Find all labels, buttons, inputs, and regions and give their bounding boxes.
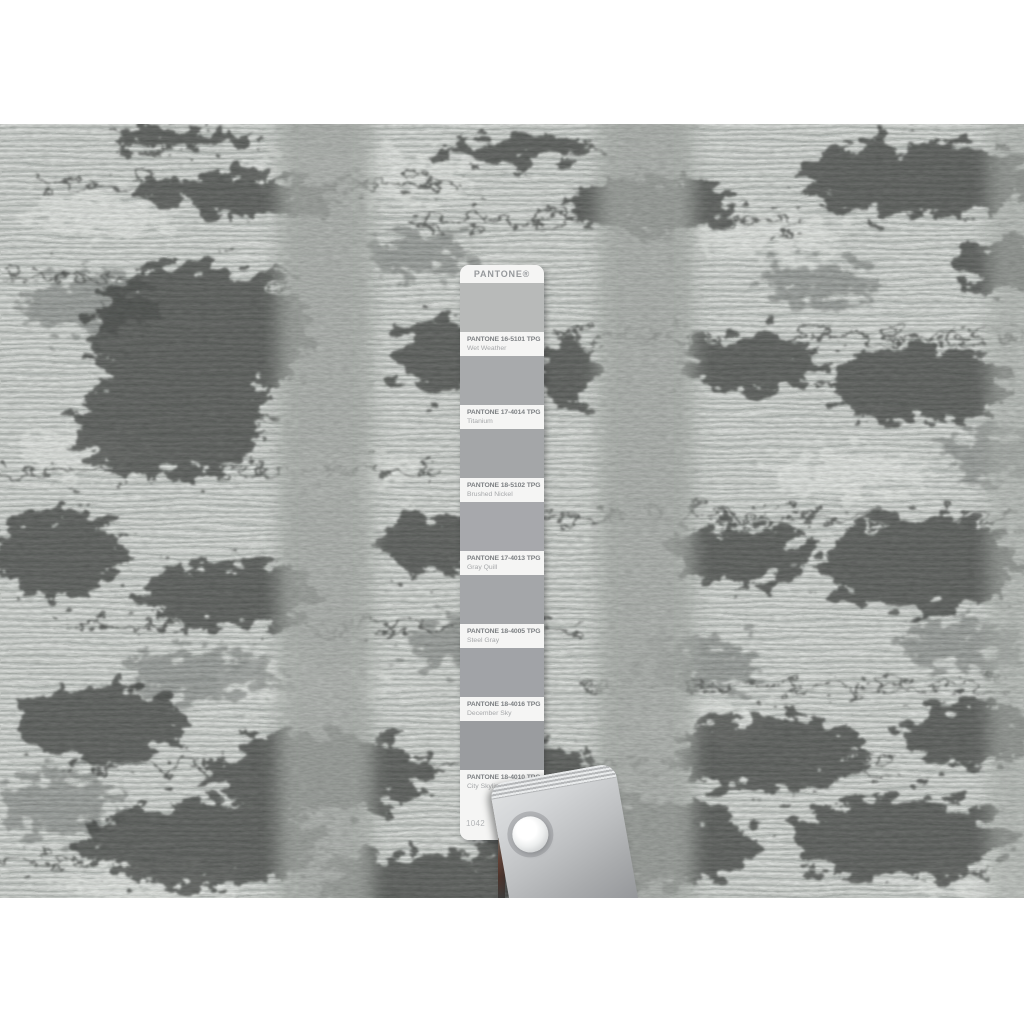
pantone-page-number: 1042 (460, 819, 485, 840)
pantone-code: PANTONE 18-5102 TPG (467, 481, 544, 490)
pantone-label: PANTONE 18-5102 TPG Brushed Nickel (460, 478, 544, 502)
pantone-color-name: Wet Weather (467, 344, 544, 353)
pantone-label: PANTONE 18-4005 TPG Steel Gray (460, 624, 544, 648)
pantone-row: PANTONE 17-4013 TPG Gray Quill (460, 502, 544, 575)
pantone-code: PANTONE 16-5101 TPG (467, 335, 544, 344)
pantone-row: PANTONE 18-4005 TPG Steel Gray (460, 575, 544, 648)
pantone-row: PANTONE 17-4014 TPG Titanium (460, 356, 544, 429)
pantone-label: PANTONE 17-4013 TPG Gray Quill (460, 551, 544, 575)
pantone-chip (460, 575, 544, 624)
pantone-chip (460, 721, 544, 770)
pantone-card: PANTONE® PANTONE 16-5101 TPG Wet Weather… (460, 265, 544, 840)
rug-photo: PANTONE® PANTONE 16-5101 TPG Wet Weather… (0, 124, 1024, 898)
pantone-brand: PANTONE® (460, 265, 544, 283)
pantone-code: PANTONE 17-4013 TPG (467, 554, 544, 563)
pantone-row: PANTONE 16-5101 TPG Wet Weather (460, 283, 544, 356)
pantone-color-name: Titanium (467, 417, 544, 426)
pantone-chip (460, 429, 544, 478)
pantone-color-name: December Sky (467, 709, 544, 718)
pantone-color-name: Gray Quill (467, 563, 544, 572)
page: PANTONE® PANTONE 16-5101 TPG Wet Weather… (0, 0, 1024, 1024)
clamp-rivet (509, 814, 551, 856)
pantone-chip (460, 283, 544, 332)
pantone-code: PANTONE 17-4014 TPG (467, 408, 544, 417)
pantone-label: PANTONE 18-4016 TPG December Sky (460, 697, 544, 721)
pantone-row: PANTONE 18-5102 TPG Brushed Nickel (460, 429, 544, 502)
pantone-label: PANTONE 16-5101 TPG Wet Weather (460, 332, 544, 356)
pantone-chip (460, 648, 544, 697)
pantone-code: PANTONE 18-4005 TPG (467, 627, 544, 636)
pantone-chip (460, 356, 544, 405)
pantone-row: PANTONE 18-4016 TPG December Sky (460, 648, 544, 721)
pantone-label: PANTONE 17-4014 TPG Titanium (460, 405, 544, 429)
pantone-chip (460, 502, 544, 551)
pantone-color-name: Brushed Nickel (467, 490, 544, 499)
pantone-code: PANTONE 18-4016 TPG (467, 700, 544, 709)
pantone-color-name: Steel Gray (467, 636, 544, 645)
